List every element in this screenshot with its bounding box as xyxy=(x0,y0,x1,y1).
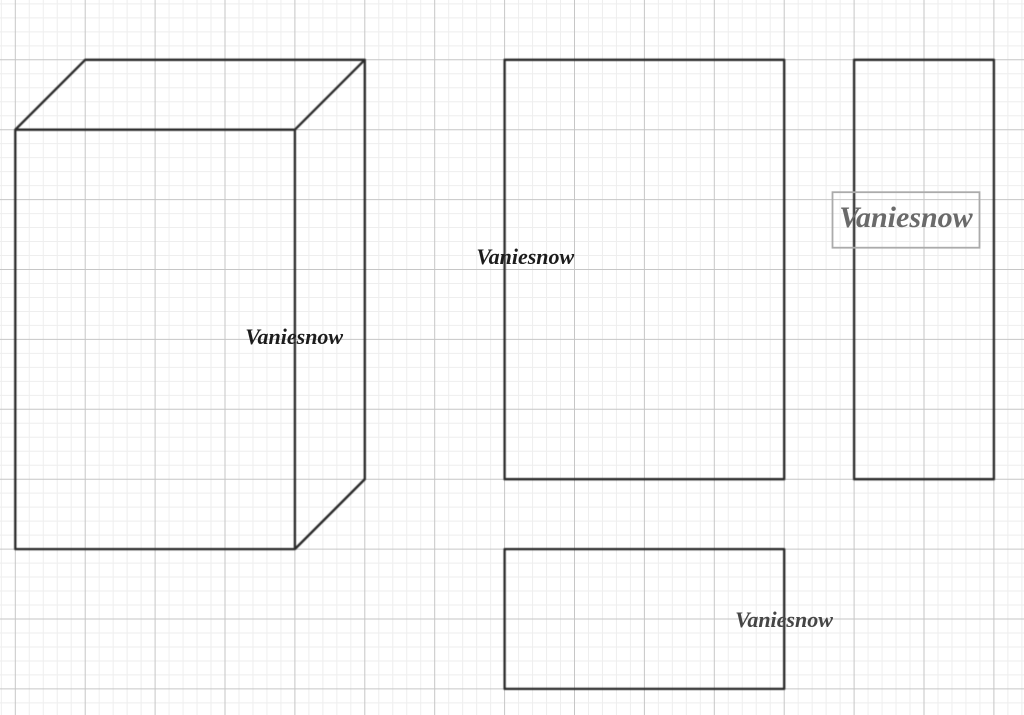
svg-text:Vaniesnow: Vaniesnow xyxy=(476,244,574,269)
svg-text:Vaniesnow: Vaniesnow xyxy=(245,324,343,349)
svg-text:Vaniesnow: Vaniesnow xyxy=(839,201,973,234)
svg-text:Vaniesnow: Vaniesnow xyxy=(735,607,833,632)
